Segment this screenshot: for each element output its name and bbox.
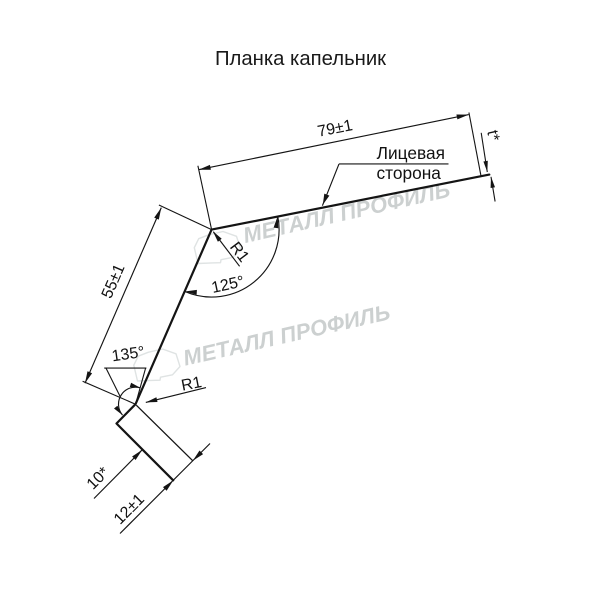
svg-text:сторона: сторона — [377, 163, 442, 183]
svg-text:МЕТАЛЛ ПРОФИЛЬ: МЕТАЛЛ ПРОФИЛЬ — [181, 299, 393, 370]
svg-text:125°: 125° — [210, 273, 246, 297]
svg-text:Планка капельник: Планка капельник — [215, 48, 386, 70]
svg-text:12±1: 12±1 — [111, 491, 148, 528]
svg-text:135°: 135° — [111, 344, 146, 365]
svg-text:79±1: 79±1 — [316, 117, 354, 140]
svg-text:R1: R1 — [180, 374, 203, 395]
svg-text:Лицевая: Лицевая — [377, 143, 445, 163]
svg-text:t*: t* — [483, 129, 502, 143]
svg-text:10*: 10* — [84, 464, 113, 493]
svg-text:55±1: 55±1 — [99, 262, 129, 301]
